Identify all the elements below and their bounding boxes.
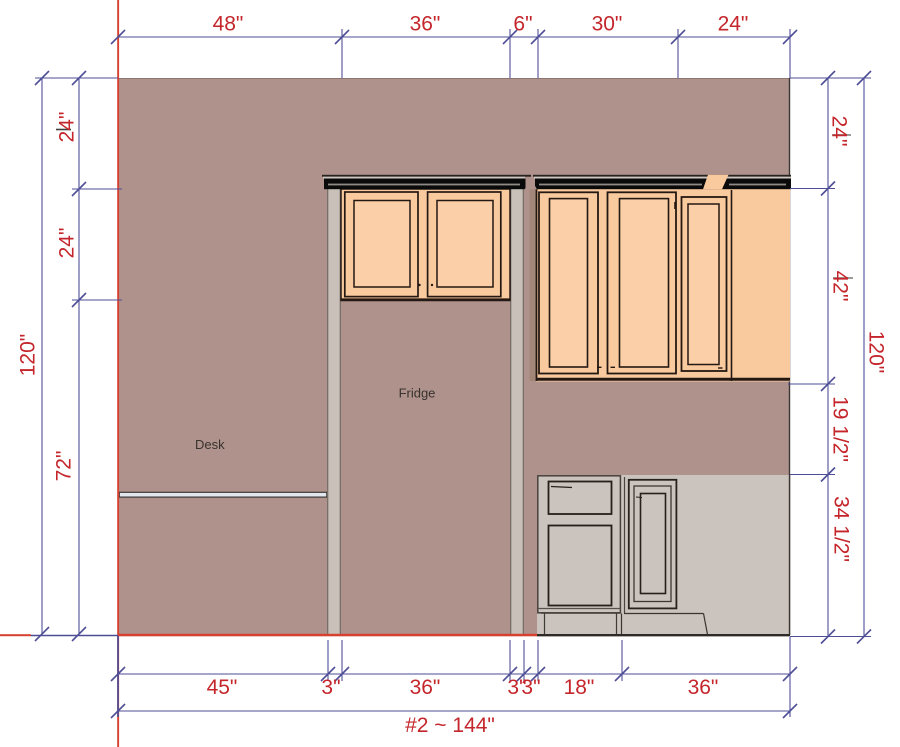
- svg-text:Desk: Desk: [195, 437, 225, 452]
- svg-text:3": 3": [321, 676, 340, 699]
- svg-text:24": 24": [828, 116, 851, 147]
- svg-text:24": 24": [718, 13, 749, 36]
- svg-text:42": 42": [829, 271, 852, 302]
- svg-text:34 1/2": 34 1/2": [830, 496, 853, 562]
- svg-text:36": 36": [688, 676, 719, 699]
- svg-text:48": 48": [213, 13, 244, 36]
- svg-text:19 1/2": 19 1/2": [829, 396, 852, 462]
- svg-text:45": 45": [207, 676, 238, 699]
- svg-text:Fridge: Fridge: [399, 386, 436, 401]
- svg-text:3": 3": [521, 676, 540, 699]
- svg-text:36": 36": [410, 676, 441, 699]
- svg-text:#2 ~ 144": #2 ~ 144": [405, 714, 495, 737]
- svg-text:24": 24": [56, 112, 79, 143]
- svg-text:72": 72": [53, 451, 76, 482]
- svg-text:30": 30": [592, 13, 623, 36]
- svg-text:120": 120": [865, 331, 888, 374]
- svg-text:6": 6": [513, 13, 532, 36]
- svg-text:24": 24": [56, 228, 79, 259]
- svg-text:36": 36": [410, 13, 441, 36]
- svg-text:120": 120": [17, 334, 40, 377]
- svg-text:18": 18": [564, 676, 595, 699]
